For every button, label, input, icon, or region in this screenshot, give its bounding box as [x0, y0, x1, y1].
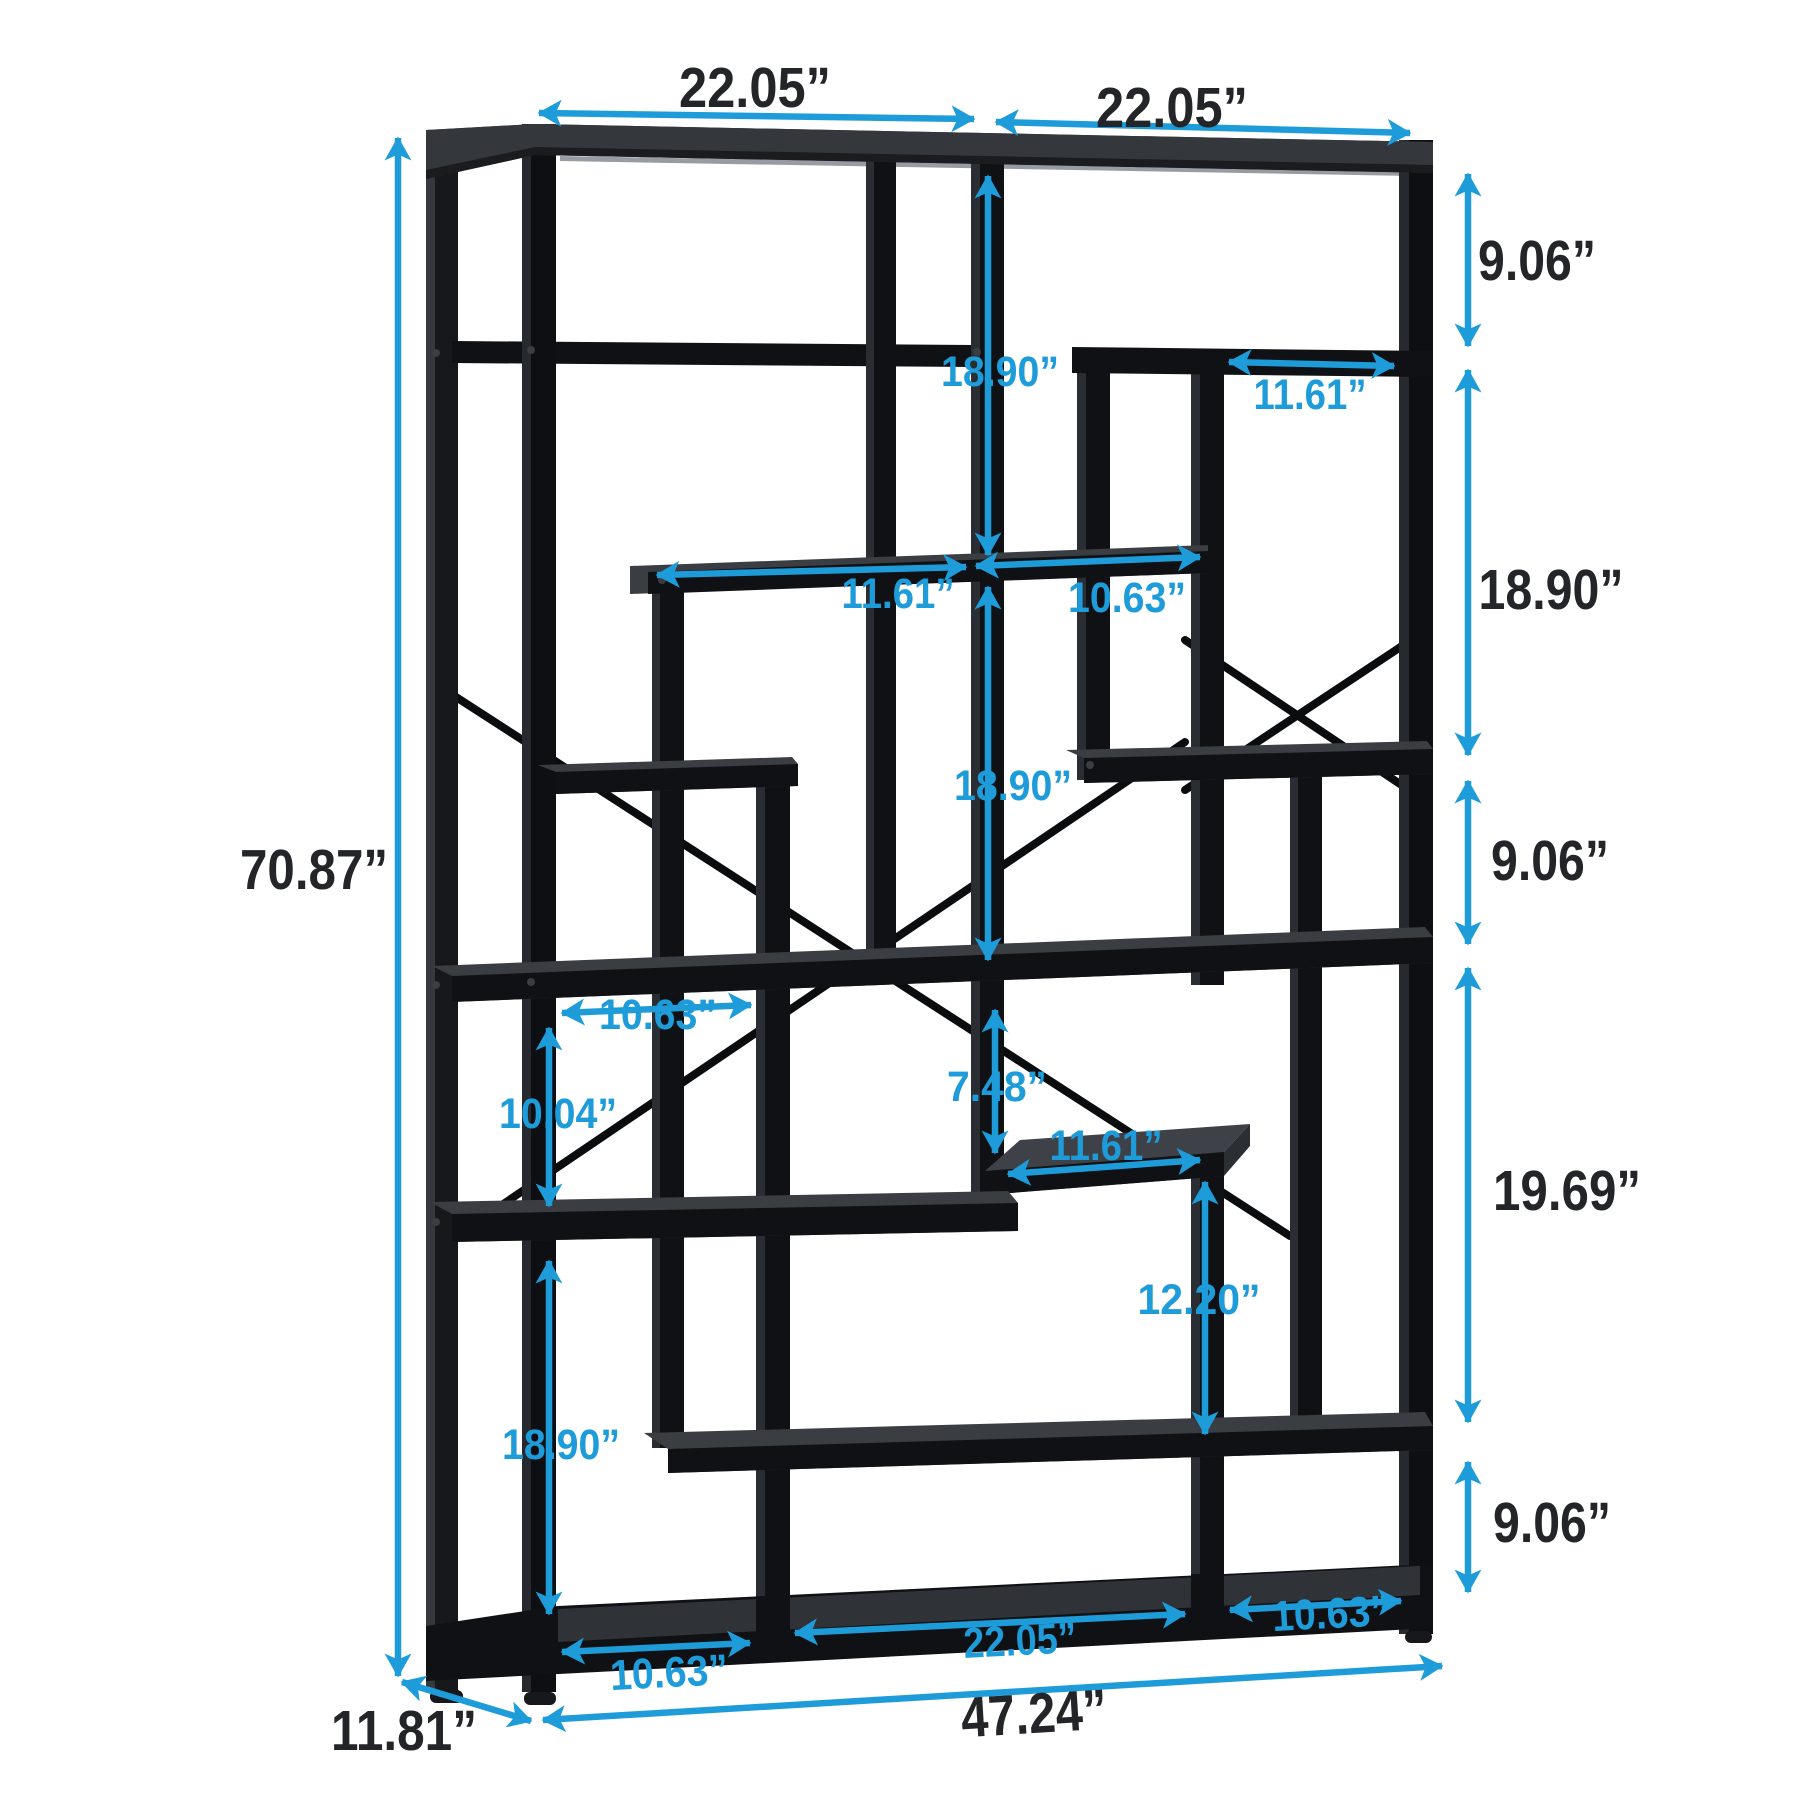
svg-text:10.63”: 10.63” — [1271, 1587, 1391, 1641]
svg-text:11.61”: 11.61” — [842, 570, 955, 618]
svg-text:11.61”: 11.61” — [1050, 1122, 1163, 1170]
svg-text:22.05”: 22.05” — [962, 1614, 1077, 1668]
svg-text:11.81”: 11.81” — [331, 1699, 477, 1763]
svg-text:10.04”: 10.04” — [499, 1090, 617, 1138]
svg-text:9.06”: 9.06” — [1493, 1491, 1611, 1555]
svg-text:70.87”: 70.87” — [240, 838, 388, 902]
svg-text:10.63”: 10.63” — [599, 991, 717, 1039]
svg-text:22.05”: 22.05” — [679, 56, 831, 120]
svg-text:18.90”: 18.90” — [502, 1421, 620, 1469]
svg-text:7.48”: 7.48” — [947, 1063, 1047, 1111]
svg-text:12.20”: 12.20” — [1138, 1276, 1261, 1324]
svg-text:47.24”: 47.24” — [959, 1678, 1109, 1751]
svg-text:10.63”: 10.63” — [1068, 574, 1186, 622]
svg-text:9.06”: 9.06” — [1491, 829, 1609, 893]
svg-text:18.90”: 18.90” — [1479, 558, 1624, 622]
svg-text:10.63”: 10.63” — [609, 1646, 729, 1700]
svg-text:11.61”: 11.61” — [1254, 371, 1367, 419]
svg-text:18.90”: 18.90” — [954, 762, 1072, 810]
svg-text:9.06”: 9.06” — [1478, 229, 1596, 293]
svg-text:18.90”: 18.90” — [941, 348, 1059, 396]
svg-text:22.05”: 22.05” — [1096, 76, 1248, 140]
svg-text:19.69”: 19.69” — [1493, 1159, 1641, 1223]
